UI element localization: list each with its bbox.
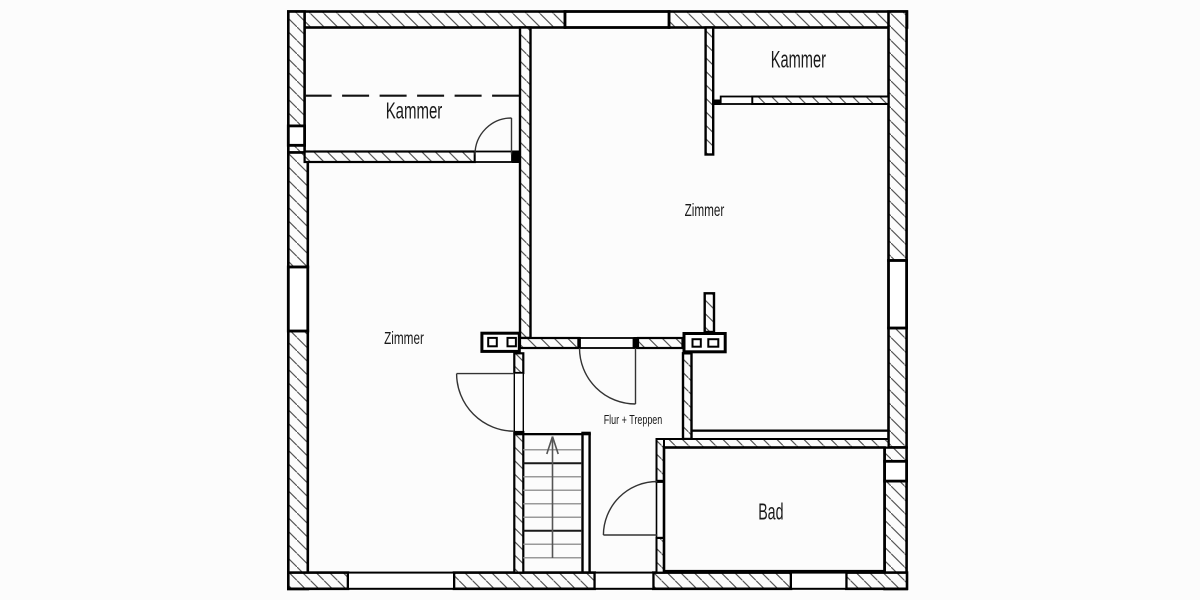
svg-text:Bad: Bad xyxy=(758,499,783,525)
svg-text:Zimmer: Zimmer xyxy=(685,200,725,220)
svg-text:Kammer: Kammer xyxy=(386,98,443,124)
svg-text:Zimmer: Zimmer xyxy=(384,328,424,348)
svg-text:Flur + Treppen: Flur + Treppen xyxy=(604,413,663,427)
svg-text:Kammer: Kammer xyxy=(771,47,826,74)
